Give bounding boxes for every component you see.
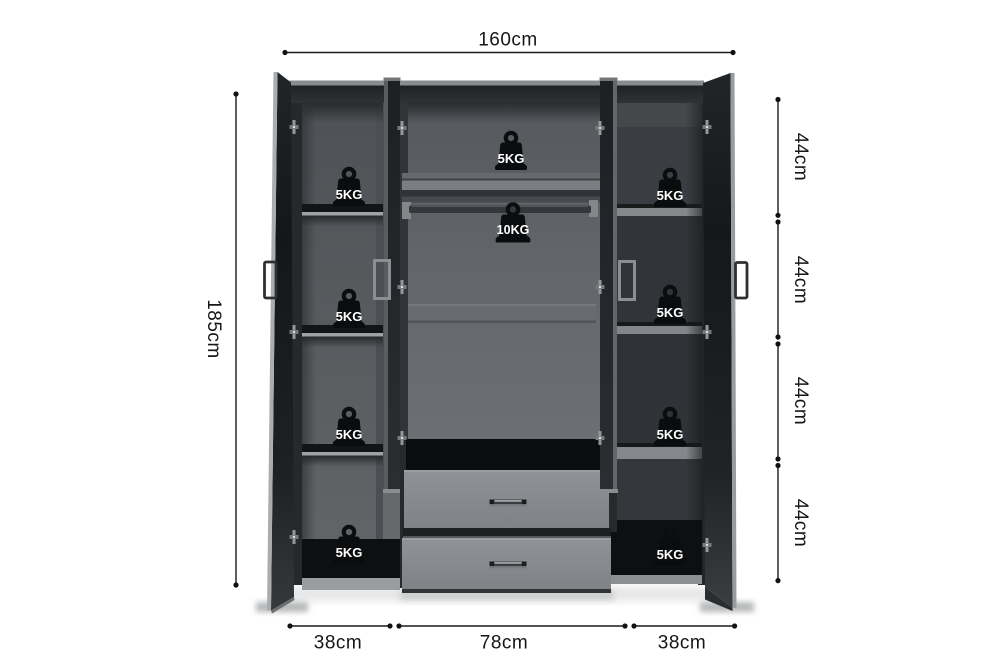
svg-text:38cm: 38cm [314,633,362,654]
svg-text:78cm: 78cm [480,633,528,654]
svg-text:44cm: 44cm [790,377,811,425]
svg-text:160cm: 160cm [478,30,538,51]
svg-text:10KG: 10KG [497,223,530,237]
svg-text:38cm: 38cm [658,633,706,654]
svg-text:44cm: 44cm [790,133,811,181]
svg-text:185cm: 185cm [203,299,224,359]
svg-text:44cm: 44cm [790,256,811,304]
svg-text:44cm: 44cm [790,499,811,547]
